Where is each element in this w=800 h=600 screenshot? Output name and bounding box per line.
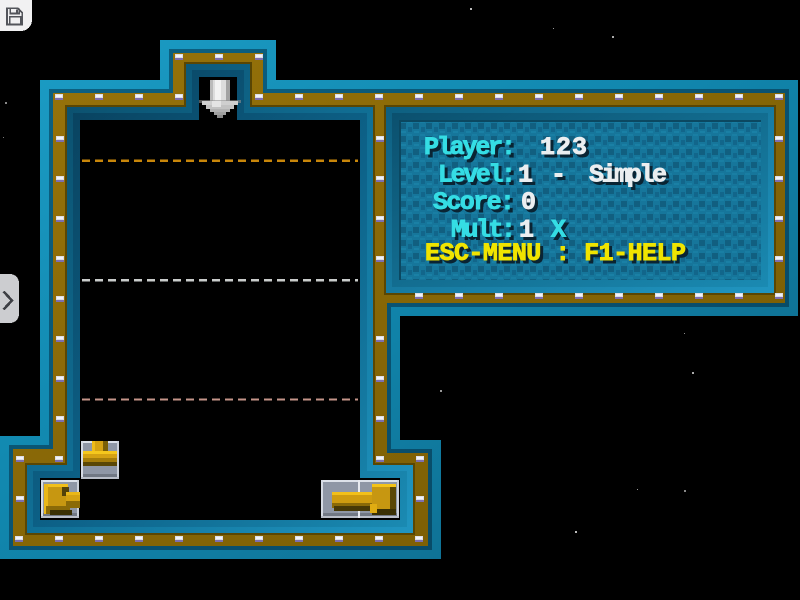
svg-text:1: 1 xyxy=(518,161,533,190)
svg-text:123: 123 xyxy=(540,133,587,162)
svg-text:Simple: Simple xyxy=(589,161,667,190)
svg-text:ESC-MENU : F1-HELP: ESC-MENU : F1-HELP xyxy=(425,239,686,268)
svg-text:Player:: Player: xyxy=(424,133,516,162)
svg-text:Level:: Level: xyxy=(438,161,516,190)
svg-text:-: - xyxy=(551,161,566,190)
svg-text:0: 0 xyxy=(521,188,536,217)
svg-text:Score:: Score: xyxy=(433,188,515,217)
